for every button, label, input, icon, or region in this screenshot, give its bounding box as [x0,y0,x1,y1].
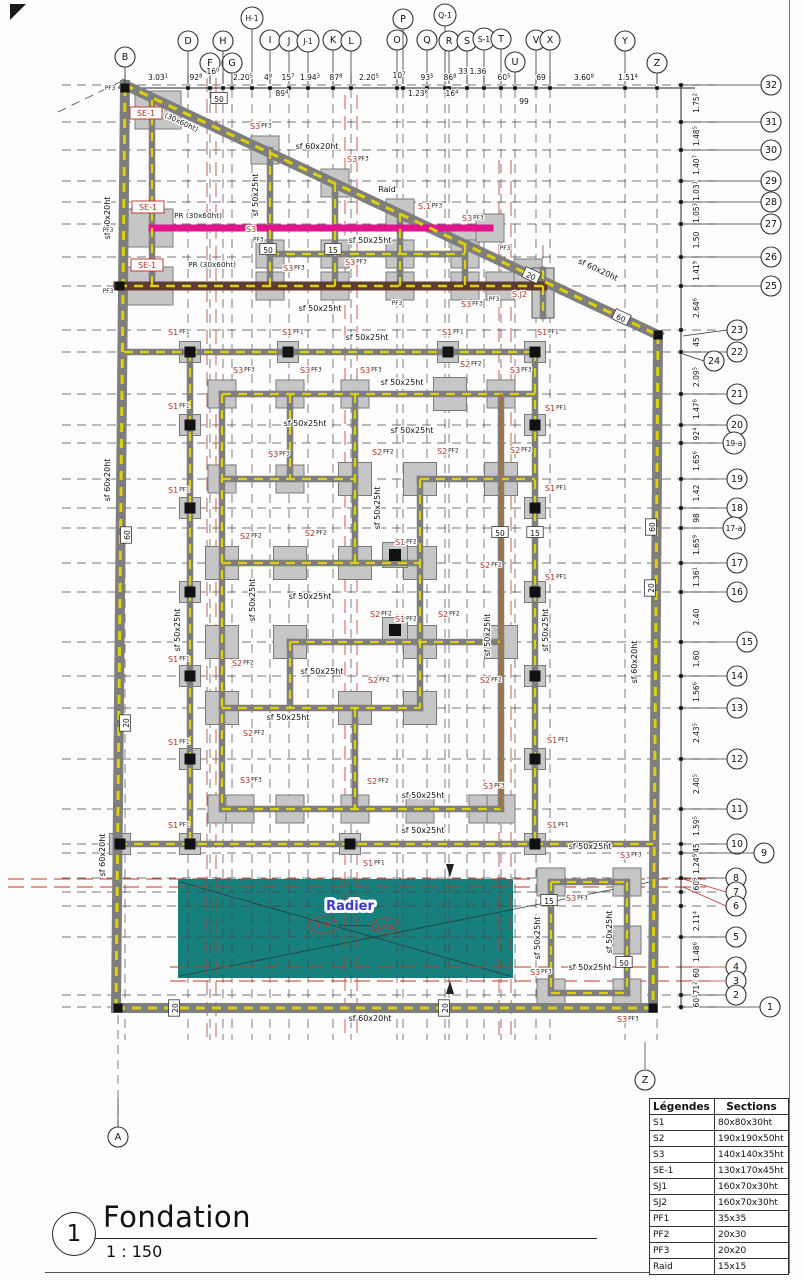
label: P [400,14,406,25]
label: 10 [731,839,743,850]
legend-row: S2190x190x50ht [650,1131,789,1147]
label: U [512,57,519,68]
legend-section: 160x70x30ht [714,1179,788,1195]
footing-label: S3PF3 [250,122,272,131]
label: sf 50x25ht [569,842,612,851]
dimension-text: 1.60 [692,650,701,667]
label: 14 [731,671,743,682]
label: Q [423,35,430,46]
width-tag: 60 [646,519,657,535]
footing-label: S1PF1 [282,328,304,337]
legend-key: SJ1 [650,1179,715,1195]
label: 19-a [726,439,743,448]
width-tag: 50 [492,527,508,538]
label: 19 [731,474,743,485]
label: 20cm [376,922,397,931]
label: B [122,52,129,63]
legend-row: PF220x30 [650,1227,789,1243]
label: 17 [731,558,743,569]
foundation-plan-svg: Radier-1.9020cmBDFGHH-1IJJ-1KLOPQQ-1RSS-… [0,0,804,1280]
footing-label: S3PF3 [566,894,588,903]
label: 1 [767,1002,773,1013]
dimension-text: 1.595 [692,816,701,836]
label: PR (30x60ht) [188,260,236,269]
dimension-text: 1.031 [692,181,701,201]
label: 29 [765,176,777,187]
dimension-text: 2.646 [692,297,701,318]
label: 2 [733,990,739,1001]
label: 12 [731,754,743,765]
legend-table: Légendes Sections S180x80x30htS2190x190x… [649,1098,789,1275]
dimension-text: 2.435 [692,723,701,743]
dimension-text: 1.659 [692,535,701,555]
label: 27 [765,219,777,230]
dimension-text: 601 [692,995,701,1008]
label: sf 60x20ht [103,459,112,502]
label: -1.90 [313,921,333,930]
label: SE-1 [139,203,157,212]
view-number: 1 [67,1221,82,1247]
dimension-text: 2.205 [233,73,253,82]
dimension-text: 605 [498,73,511,82]
dimension-text: 60 [692,968,701,978]
label: 26 [765,252,777,263]
label: 15 [741,637,753,648]
footing-label: S1PF1 [168,655,190,664]
label: sf 50x25ht [299,304,342,313]
dimension-text: 1.485 [692,126,701,146]
legend-row: PF320x20 [650,1243,789,1259]
label: 50 [619,959,629,968]
legend-section: 35x35 [714,1211,788,1227]
legend-key: PF1 [650,1211,715,1227]
label: PF3 [103,289,114,295]
width-tag: 60 [121,527,132,543]
dimension-text: 160 [207,67,220,76]
dimension-text: 98 [692,513,701,523]
label: V [533,35,540,46]
label: K [330,35,337,46]
footing-label: S3PF3 [620,851,642,860]
label: PF3 [105,86,116,92]
label: 13 [731,703,743,714]
label: PR (30x60ht) [174,211,222,220]
label: sf 50x25ht [402,791,445,800]
footing-label: S1PF1 [168,328,190,337]
label: 20 [122,718,131,728]
label: 15 [328,246,338,255]
label: Y [621,36,628,47]
label: 15 [530,529,540,538]
dimension-text: 1.514 [618,73,639,82]
label: 20 [647,583,656,593]
footing-label: S1PF1 [168,738,190,747]
label: T [497,34,504,45]
dimension-text: 1.50 [692,231,701,248]
label: sf 50x25ht [349,236,392,245]
width-tag: 15 [527,527,543,538]
footing-label: S2PF2 [305,529,327,538]
footing-label: S1PF1 [442,328,464,337]
label: PF3 [103,228,114,234]
legend-key: S2 [650,1131,715,1147]
dimension-text: 69 [536,73,546,82]
label: sf 50x25ht [284,419,327,428]
dimension-text: 33 [458,67,468,76]
footing-label: S2PF2 [372,448,394,457]
dimension-text: 1.053 [692,203,701,223]
dimension-text: 107 [393,71,406,80]
label: 60 [123,530,132,540]
footing-label: S1PF1 [168,402,190,411]
label: 50 [214,95,224,104]
label: SE-1 [138,261,156,270]
width-tag: 50 [260,244,276,255]
dimension-text: 2.40 [692,608,701,625]
footing-label: S3PF3 [617,1015,639,1024]
label: Raid [378,185,396,194]
label: 16 [731,587,743,598]
legend-row: SE-1130x170x45ht [650,1163,789,1179]
width-tag: 50 [616,957,632,968]
footing-label: S2PF2 [232,659,254,668]
label: 9 [761,848,767,859]
footing-label: S2PF2 [510,446,532,455]
footing-label: S3PF3 [268,450,290,459]
footing-label: S3PF3 [461,300,483,309]
legend-key: PF3 [650,1243,715,1259]
view-number-bubble: 1 [52,1212,96,1256]
label: sf 50x25ht [173,609,182,652]
label: H [219,36,226,47]
footing-label: S1PF1 [547,736,569,745]
dimension-text: 164 [446,89,460,98]
label: sf 50x25ht [391,426,434,435]
label: R [446,36,453,47]
legend-header-sections: Sections [714,1099,788,1115]
label: 15 [544,897,554,906]
dimension-text: 1.486 [692,941,701,962]
dimension-text: 1.238 [408,89,428,98]
label: sf 50x25ht [289,592,332,601]
drawing-sheet: Radier-1.9020cmBDFGHH-1IJJ-1KLOPQQ-1RSS-… [0,0,804,1280]
footing-label: S2PF2 [243,729,265,738]
dimension-text: 157 [282,73,295,82]
footing-label: S1PF1 [168,486,190,495]
label: Q-1 [438,11,452,20]
width-tag: 15 [541,895,557,906]
footing-label: S3PF3 [345,258,367,267]
legend-row: Raid15x15 [650,1259,789,1275]
dimension-text: 928 [190,73,203,82]
footing-label: S2PF2 [367,777,389,786]
label: S [464,36,470,47]
footing-label: S3PF3 [300,366,322,375]
footing-label: S3 [246,225,256,234]
label: PF3 [392,301,403,307]
label: 50 [263,246,273,255]
label: sf 50x25ht [483,614,492,657]
width-tag: 15 [325,244,341,255]
dimension-text: 3.608 [574,73,594,82]
footing-label: S3PF3 [233,366,255,375]
legend-header-key: Légendes [650,1099,715,1115]
label: 20 [171,1003,180,1013]
footing-label: S1PF1 [545,484,567,493]
label: 20 [731,420,743,431]
footing-label: S1PF1 [168,821,190,830]
dimension-text: 2.205 [359,73,379,82]
label: sf 50x25ht [346,333,389,342]
label: sf 60x20ht [296,142,339,151]
label: 30 [765,145,777,156]
label: sf 50x25ht [301,667,344,676]
width-tag: 50 [211,93,227,104]
label: sf 50x25ht [251,174,260,217]
dimension-text: 1.42 [692,484,701,501]
dimension-text: 45 [692,843,701,853]
label: sf 50x25ht [605,911,614,954]
label: H-1 [245,14,258,23]
label: 25 [765,281,777,292]
dimension-text: 1.361 [692,567,701,587]
label: 11 [731,804,743,815]
label: 50 [495,529,505,538]
legend-key: SJ2 [650,1195,715,1211]
footing-label: S3PF3 [347,155,369,164]
label: sf 50x25ht [381,378,424,387]
dimension-text: 2.095 [692,367,701,387]
legend-section: 130x170x45ht [714,1163,788,1179]
label: G [228,58,235,69]
label: sf 60x20ht [349,1014,392,1023]
label: sf 60x20ht [577,257,620,283]
dimension-text: 894 [276,89,290,98]
label: L [348,36,354,47]
dimension-text: 924 [692,427,701,441]
dimension-text: 878 [330,73,343,82]
dimension-text: 1.752 [692,93,701,113]
label: 17-a [726,524,743,533]
label: 24 [708,356,720,367]
width-tag: 20 [120,715,131,731]
legend-key: S3 [650,1147,715,1163]
label: sf 60x20ht [98,834,107,877]
legend-key: S1 [650,1115,715,1131]
label: 18 [731,503,743,514]
legend-row: PF135x35 [650,1211,789,1227]
label: 32 [765,80,777,91]
label: O [393,35,400,46]
legend-row: SJ1160x70x30ht [650,1179,789,1195]
legend-section: 15x15 [714,1259,788,1275]
label: 31 [765,117,777,128]
legend-key: PF2 [650,1227,715,1243]
label: sf 50x25ht [267,713,310,722]
footing-label: S1PF1 [363,859,385,868]
footing-label: S2PF2 [240,532,262,541]
label: SE-1 [137,109,155,118]
label: 23 [731,325,743,336]
label: 21 [731,389,743,400]
legend-key: SE-1 [650,1163,715,1179]
dimension-text: 45 [692,337,701,347]
dimension-text: 2.114 [692,910,701,931]
legend-section: 190x190x50ht [714,1131,788,1147]
legend-section: 20x30 [714,1227,788,1243]
label: 22 [731,347,743,358]
label: sf 50x25ht [402,826,445,835]
label: J [287,36,291,47]
label: D [184,36,191,47]
footing-label: S3PF3 [240,776,262,785]
legend-section: 140x140x35ht [714,1147,788,1163]
footing-label: S3PF3 [510,366,532,375]
dimension-text: 868 [444,73,457,82]
dimension-text: 48 [264,73,272,82]
label: 6 [733,901,739,912]
radier-area [178,879,513,978]
label: PF3 [489,297,500,303]
footing-label: S1PF1 [547,821,569,830]
dimension-text: 1.249 [692,854,701,874]
dimension-text: 712 [692,982,701,995]
footing-label: S1PF1 [545,573,567,582]
label: Z [654,58,661,69]
label: PF3 [500,246,511,252]
title-underline [95,1238,597,1239]
label: sf 50x25ht [533,917,542,960]
dimension-text: 935 [421,73,434,82]
legend-row: S180x80x30ht [650,1115,789,1131]
footing-label: S2PF2 [437,447,459,456]
footing-label: PF3 [253,238,264,244]
footing-label: S1PF1 [545,404,567,413]
legend-section: 160x70x30ht [714,1195,788,1211]
dimension-text: 1.419 [692,261,701,281]
label: 20 [441,1003,450,1013]
footing-label: S2PF2 [368,676,390,685]
dimension-text: 1.656 [692,450,701,471]
footing-label: S.1PF3 [418,202,443,211]
dimension-text: 3.031 [148,73,168,82]
legend-row: S3140x140x35ht [650,1147,789,1163]
dimension-text: 1.943 [300,73,320,82]
label: 60 [648,522,657,532]
legend-section: 80x80x30ht [714,1115,788,1131]
legend-key: Raid [650,1259,715,1275]
label: X [547,35,554,46]
footing-label: S1PF1 [537,328,559,337]
label: 28 [765,197,777,208]
label: 5 [733,932,739,943]
dimension-text: 1.566 [692,681,701,702]
label: sf 50x25ht [373,487,382,530]
label: Radier [326,899,374,914]
label: sf 50x25ht [248,579,257,622]
legend-section: 20x20 [714,1243,788,1259]
legend-row: SJ2160x70x30ht [650,1195,789,1211]
footing-label: S.J2 [512,290,527,299]
label: sf 50x25ht [541,609,550,652]
label: sf 50x25ht [569,963,612,972]
dimension-text: 2.405 [692,774,701,794]
label: S-1 [478,35,490,44]
view-title: Fondation [103,1200,251,1234]
label: Z [642,1075,649,1086]
view-scale: 1 : 150 [106,1242,162,1261]
label: I [269,35,272,46]
width-tag: 20 [169,1000,180,1016]
width-tag: 20 [439,1000,450,1016]
label: J-1 [302,37,313,46]
dimension-text: 1.36 [470,67,487,76]
dimension-text: 1.407 [692,155,701,175]
dimension-text: 1.476 [692,398,701,419]
dimension-text: 609 [692,878,701,891]
label: sf 60x20ht [630,641,639,684]
dimension-text: 99 [519,97,529,106]
footing-label: S3PF3 [283,264,305,273]
footing-label: S3PF3 [360,366,382,375]
footing-label: S2PF2 [460,360,482,369]
width-tag: 20 [645,580,656,596]
label: A [115,1132,122,1143]
